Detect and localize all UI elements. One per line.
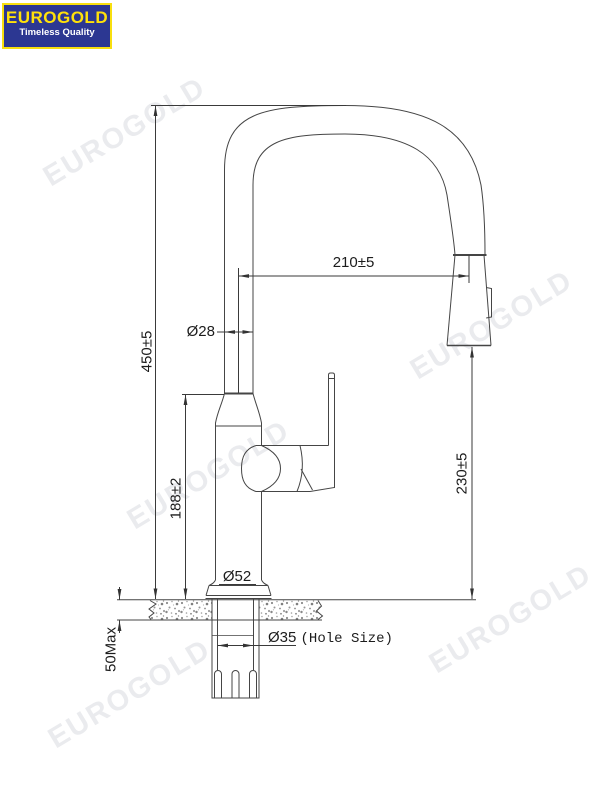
- drawing-sheet: EUROGOLD Timeless Quality EUROGOLD EUROG…: [0, 0, 600, 800]
- spout-outline: [224, 106, 485, 394]
- dim-spout-reach: 210±5: [238, 254, 469, 271]
- hole-diameter-value: Ø35: [268, 629, 296, 646]
- faucet-body: [216, 394, 262, 581]
- threaded-shank: [212, 599, 260, 699]
- dim-overall-height: 450±5: [139, 321, 156, 383]
- faucet-technical-drawing: [0, 0, 600, 800]
- handle-lever: [310, 373, 335, 492]
- dimension-lines: [120, 106, 473, 646]
- handle-assembly: [242, 373, 335, 492]
- dim-spout-tube-diameter: Ø28: [168, 323, 215, 340]
- countertop-section: [117, 600, 476, 620]
- dim-hole-size: Ø35 (Hole Size): [268, 629, 393, 647]
- dim-body-height: 188±2: [168, 468, 185, 530]
- dim-counter-thickness: 50Max: [103, 619, 120, 681]
- dim-spray-head-clearance: 230±5: [454, 443, 471, 505]
- dim-base-diameter: Ø52: [209, 568, 265, 585]
- hole-size-note: (Hole Size): [301, 631, 393, 647]
